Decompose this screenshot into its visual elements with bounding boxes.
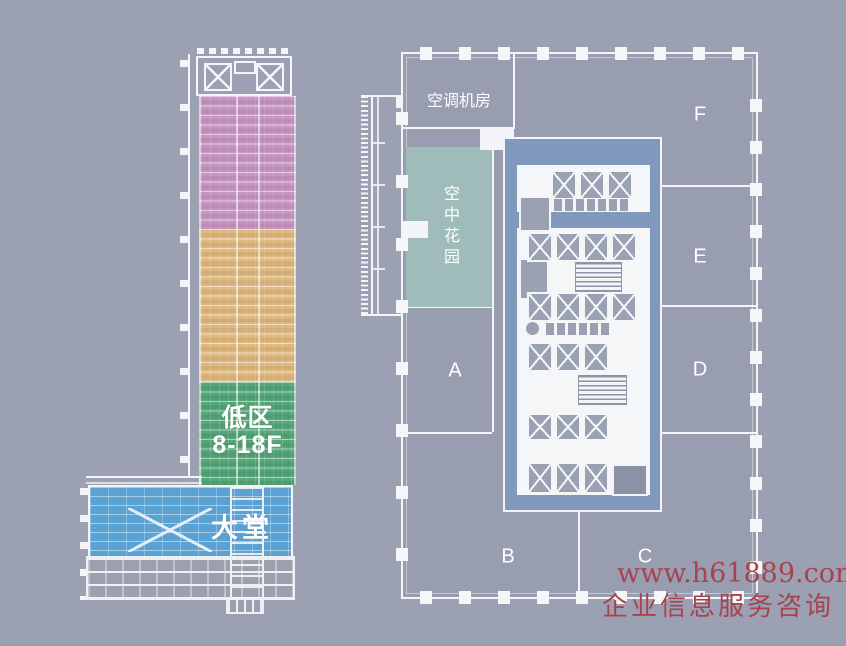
column-marker [750, 225, 762, 238]
elevator-cell-icon [611, 232, 637, 262]
elevator-cell-icon [527, 232, 553, 262]
zone-label-f: F [694, 104, 706, 127]
column-marker [396, 175, 408, 188]
fixture-cell [553, 198, 563, 212]
tower-zone-mid [199, 229, 296, 382]
column-marker [732, 47, 744, 60]
core-room [519, 196, 551, 232]
tower-core-line [236, 96, 238, 485]
zone-label-d: D [693, 359, 707, 382]
column-marker [750, 183, 762, 196]
column-marker [498, 47, 510, 60]
louver-rung [371, 268, 385, 270]
louver-tick-marks [361, 96, 368, 316]
diagram-canvas: 低区 8-18F 大堂 空调机房 空中花园 [0, 0, 846, 646]
tower-crown [196, 56, 292, 96]
column-marker [396, 424, 408, 437]
column-marker [750, 393, 762, 406]
column-marker [420, 591, 432, 604]
garden-side-wall [492, 147, 494, 432]
zone-label-a: A [448, 360, 461, 383]
elevator-cell-icon [583, 413, 609, 441]
elevator-cell-icon [555, 342, 581, 372]
zone-label-e: E [693, 246, 706, 269]
column-marker [693, 47, 705, 60]
elevator-cell-icon [583, 462, 609, 494]
column-marker [750, 267, 762, 280]
fixture-cell [586, 198, 596, 212]
zone-f-e-wall [662, 185, 756, 187]
elevator-cell-icon [527, 413, 553, 441]
column-marker [396, 112, 408, 125]
crown-brace-left-icon [204, 63, 232, 91]
column-marker [537, 591, 549, 604]
elevator-cell-icon [583, 232, 609, 262]
louver-rung [371, 226, 385, 228]
elevator-shaft [230, 487, 264, 598]
watermark: www.h61889.com [617, 558, 846, 589]
podium-roof-line [86, 482, 202, 484]
elevator-cell-icon [527, 342, 553, 372]
elevator-cell-icon [611, 292, 637, 322]
louver-rung [371, 184, 385, 186]
column-marker [459, 591, 471, 604]
low-zone-floor-range: 8-18F [201, 432, 294, 458]
column-marker [420, 47, 432, 60]
zone-d-c-wall [662, 432, 756, 434]
ac-room-label: 空调机房 [427, 87, 491, 111]
louver-rung [371, 142, 385, 144]
fixture-cell [567, 322, 577, 336]
elevator-cell-icon [555, 413, 581, 441]
tower-zone-low: 低区 8-18F [199, 382, 296, 485]
tower-zone-high [199, 96, 296, 229]
elevator-cell-icon [527, 292, 553, 322]
garden-tab [402, 221, 428, 238]
elevator-cell-icon [583, 292, 609, 322]
column-marker [750, 99, 762, 112]
fixture-cell [556, 322, 566, 336]
elevator-cell-icon [555, 462, 581, 494]
fixture-cell [619, 198, 629, 212]
column-marker [537, 47, 549, 60]
fixture-cell [608, 198, 618, 212]
louver-cap [361, 314, 403, 316]
column-marker [654, 47, 666, 60]
column-marker [750, 519, 762, 532]
column-marker [750, 141, 762, 154]
column-marker [396, 362, 408, 375]
column-marker [750, 477, 762, 490]
fixture-cell [545, 322, 555, 336]
column-marker [498, 591, 510, 604]
fixture-cell [578, 322, 588, 336]
ac-room-wall [513, 54, 515, 129]
fixture-cell [600, 322, 610, 336]
elevator-cell-icon [583, 342, 609, 372]
zone-a-bottom-wall [403, 432, 492, 434]
elevator-cell-icon [555, 292, 581, 322]
escalator-icon [128, 508, 212, 552]
tower-core-line [258, 96, 260, 485]
basement-pit [226, 598, 264, 614]
low-zone-label: 低区 [201, 405, 294, 431]
fixture-cell [597, 198, 607, 212]
column-marker [396, 238, 408, 251]
column-marker [750, 435, 762, 448]
louver-line [377, 96, 379, 316]
column-marker [615, 47, 627, 60]
column-marker [396, 300, 408, 313]
column-marker [750, 351, 762, 364]
zone-label-b: B [501, 546, 514, 569]
facade-edge-line [188, 54, 190, 478]
service-core [503, 137, 662, 512]
podium-roof-line [86, 476, 202, 478]
fixture-cell [575, 198, 585, 212]
floor-plan: 空调机房 空中花园 A B C D E F [401, 52, 758, 599]
elevator-cell-icon [579, 170, 605, 200]
core-room [612, 464, 648, 496]
elevator-cell-icon [555, 232, 581, 262]
elevator-cell-icon [527, 462, 553, 494]
louver-line [371, 96, 373, 316]
zone-b-c-wall [578, 510, 580, 597]
crown-center-panel [234, 61, 256, 74]
column-marker [750, 309, 762, 322]
crown-roof-dashes [197, 48, 292, 54]
column-marker [576, 47, 588, 60]
stair-icon [575, 262, 622, 292]
column-marker [396, 486, 408, 499]
elevator-cell-icon [607, 170, 633, 200]
stair-icon [578, 375, 627, 405]
elevator-cell-icon [551, 170, 577, 200]
column-marker [459, 47, 471, 60]
crown-brace-right-icon [256, 63, 284, 91]
fixture-circle-icon [524, 320, 541, 337]
column-marker [576, 591, 588, 604]
fixture-cell [589, 322, 599, 336]
column-marker [396, 548, 408, 561]
watermark-subtitle: 企业信息服务咨询 [602, 586, 834, 623]
zone-e-d-wall [662, 305, 756, 307]
facade-tick-marks [180, 60, 188, 480]
sky-garden-label: 空中花园 [437, 185, 461, 269]
fixture-cell [564, 198, 574, 212]
